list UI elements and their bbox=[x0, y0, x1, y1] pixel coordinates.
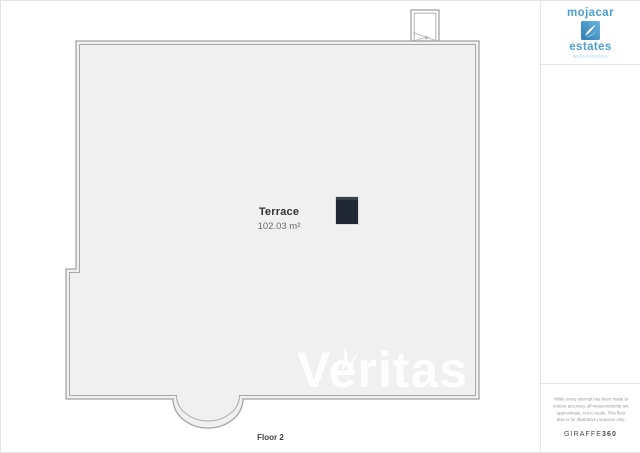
logo-tagline: SALES & RENTALS bbox=[573, 55, 608, 59]
disclaimer-line: While every attempt has been made to bbox=[544, 397, 637, 404]
logo-word-bottom: estates bbox=[569, 42, 611, 54]
room-label-block: Terrace 102.03 m² bbox=[234, 206, 324, 232]
chimney-column bbox=[336, 197, 358, 224]
floor-plan-area: Terrace 102.03 m² Veritas Floor 2 bbox=[1, 1, 540, 452]
disclaimer-text: While every attempt has been made to ens… bbox=[544, 397, 637, 424]
disclaimer-box: While every attempt has been made to ens… bbox=[541, 383, 640, 452]
page: Terrace 102.03 m² Veritas Floor 2 mojaca… bbox=[0, 0, 640, 453]
terrace-outline-outer bbox=[66, 41, 479, 428]
disclaimer-line: plan is for illustrative purposes only. bbox=[544, 417, 637, 424]
disclaimer-line: ensure accuracy, all measurements are bbox=[544, 404, 637, 411]
floor-caption: Floor 2 bbox=[1, 433, 540, 442]
brand-prefix: GIRAFFE bbox=[564, 431, 602, 438]
wave-sail-icon bbox=[581, 21, 600, 40]
agency-logo: mojacar estates SALES & RENTALS bbox=[541, 1, 640, 65]
stair-bulkhead bbox=[411, 10, 439, 41]
sidebar: mojacar estates SALES & RENTALS bbox=[540, 1, 640, 452]
disclaimer-line: approximate, not to scale. This floor bbox=[544, 410, 637, 417]
room-area: 102.03 m² bbox=[234, 221, 324, 232]
giraffe360-brand: GIRAFFE360 bbox=[541, 431, 640, 438]
room-name: Terrace bbox=[234, 206, 324, 218]
brand-suffix: 360 bbox=[602, 431, 617, 438]
logo-word-top: mojacar bbox=[567, 8, 614, 20]
